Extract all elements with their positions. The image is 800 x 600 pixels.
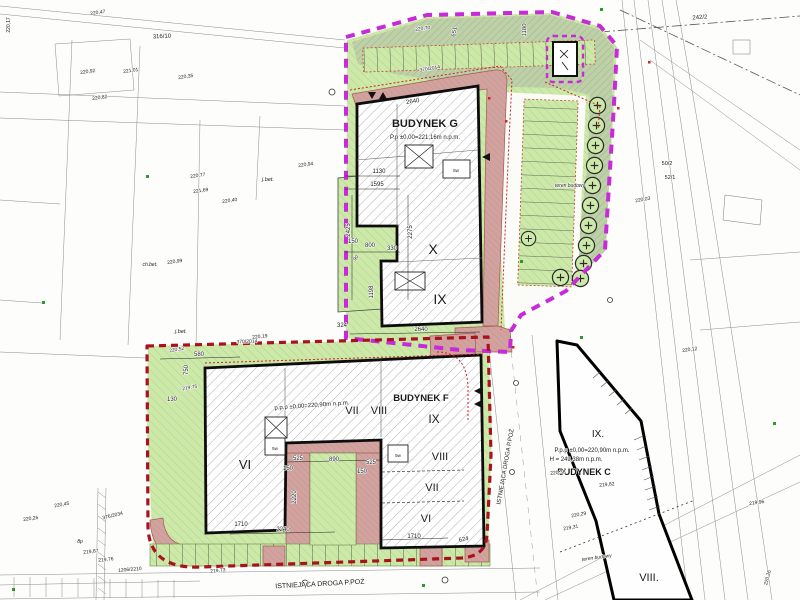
dimension-label: 580 [194,352,205,358]
site-plan-drawing: BUDYNEK GP.p ±0,00=221,16m n.p.m.XIXBUDY… [0,0,800,600]
parking-strip-right [518,99,578,287]
parcel-number: 50/2 [662,161,673,167]
dimension-label: 330 [387,246,398,252]
parcel-number: 52/1 [665,175,676,181]
building-c-floor-viii: VIII. [639,572,659,584]
vent-shaft-label: 5w [272,446,279,451]
dimension-label: 2425 [346,223,352,237]
dimension-label: 2240 [276,527,290,533]
dimension-label: 150 [348,239,359,245]
dimension-label: 1130 [373,169,387,175]
dimension-label: 525 [366,460,377,466]
tree-icon [552,269,568,285]
teren-budowy-upper: teren budowy [555,183,586,189]
dimension-label: 130 [167,397,178,403]
building-c-height: H = 249,38m n.p.m. [550,457,603,463]
building-f-floor-viii: VIII [432,451,449,463]
building-f-floor-ix: IX [428,412,439,426]
tree-icon [587,137,603,153]
tree-icon [586,157,602,173]
surface-note: 8p [77,539,83,545]
building-f-floor-vii: VII [425,482,438,494]
dimension-label: 1710 [407,534,421,540]
surface-note: j.bet. [261,177,274,183]
dimension-label: 1710 [234,522,248,528]
dimension-label: 890 [329,457,340,463]
building-g-floor-ix: IX [433,291,447,307]
tree-icon [582,197,598,213]
building-c-level: P.p.p ±0,00=220,90m n.p.m. [554,448,629,454]
trafo-station [547,36,583,82]
building-g-level: P.p ±0,00=221,16m n.p.m. [390,135,460,141]
tree-icon [589,97,605,113]
dimension-label: 800 [365,243,376,249]
vent-shaft-label: 5w [453,168,460,173]
building-f-floor-vi: VI [421,513,431,525]
dimension-label: 150 [357,469,368,475]
building-f-floor-vi-left: VI [239,457,251,472]
dimension-label: 150 [283,466,294,472]
building-c-floor-ix: IX. [592,429,604,440]
building-f-label: BUDYNEK F [393,393,449,404]
tree-icon [578,237,594,253]
surface-note: ch.bet. [142,262,157,268]
dimension-label: 750 [184,364,190,375]
tree-icon [588,117,604,133]
dimension-label: 2220 [292,490,298,504]
surface-note: j.bet. [174,329,187,335]
building-f-courtyard [310,453,356,545]
dimension-label: 1595 [370,182,384,188]
building-g-label: BUDYNEK G [392,118,458,130]
dimension-label: 525 [293,456,304,462]
parcel-number: 316/10 [153,33,172,40]
dimension-label: 2640 [414,327,428,333]
building-f-floor-vii-top: VII [345,405,358,417]
parcel-number: 242/2 [692,14,708,21]
site-plan-svg: BUDYNEK GP.p ±0,00=221,16m n.p.m.XIXBUDY… [0,0,800,600]
tree-icon [521,231,535,245]
tree-icon [584,177,600,193]
dimension-label: 1180 [522,23,529,37]
dimension-label: 324 [337,323,348,329]
dimension-label: 2275 [408,225,414,239]
building-g-floor-x: X [428,241,438,257]
tree-icon [580,217,596,233]
building-f-floor-viii-top: VIII [371,405,388,417]
dimension-label: 1198 [369,285,375,299]
spot-height: 220,17 [6,17,12,33]
vent-shaft-label: 5w [395,453,402,458]
